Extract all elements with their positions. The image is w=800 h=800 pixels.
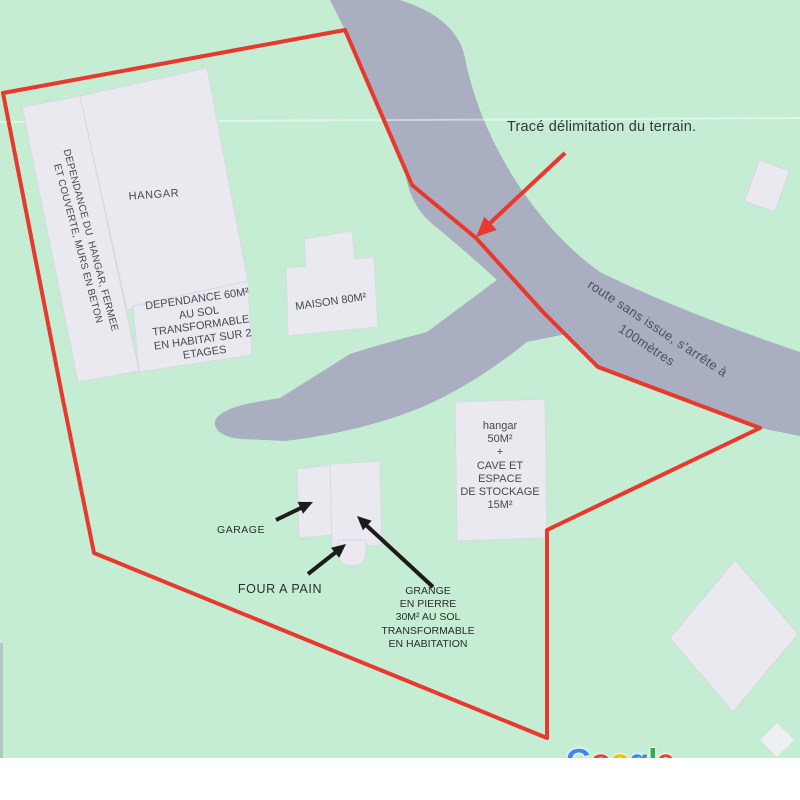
rotated-building-bottom-right <box>670 560 798 712</box>
grange-annotation-label: GRANGE EN PIERRE 30M² AU SOL TRANSFORMAB… <box>368 585 488 651</box>
grange-arrow <box>357 516 433 587</box>
trace-delimitation-title: Tracé délimitation du terrain. <box>507 121 696 135</box>
four-a-pain-structure <box>338 540 366 566</box>
four-a-pain-annotation-label: FOUR A PAIN <box>225 583 335 597</box>
terrain-map: Tracé délimitation du terrain. route san… <box>0 0 800 800</box>
garage-annotation-label: GARAGE <box>206 524 276 538</box>
hangar50-label: hangar 50M² + CAVE ET ESPACE DE STOCKAGE… <box>440 420 560 512</box>
small-building-bottom-right <box>760 723 794 757</box>
maison-building <box>286 231 378 336</box>
left-edge-road-sliver <box>0 643 3 758</box>
small-building-top-right <box>744 160 789 212</box>
garage-building <box>297 465 332 538</box>
bottom-white-strip <box>0 758 800 800</box>
